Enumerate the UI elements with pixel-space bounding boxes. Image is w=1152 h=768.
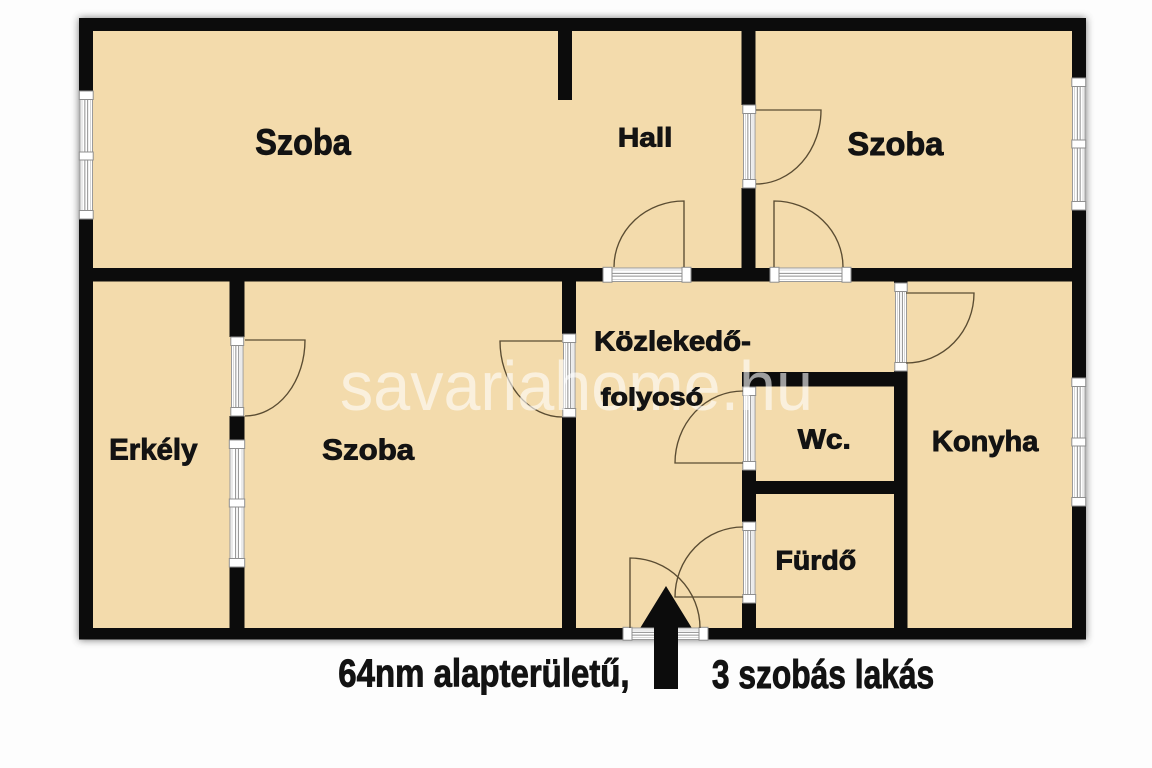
svg-text:Szoba: Szoba	[255, 121, 351, 162]
svg-text:folyosó: folyosó	[601, 384, 703, 412]
svg-text:Hall: Hall	[618, 123, 673, 153]
svg-text:3 szobás lakás: 3 szobás lakás	[712, 653, 934, 697]
svg-text:Erkély: Erkély	[109, 434, 198, 467]
svg-text:Wc.: Wc.	[798, 424, 851, 455]
svg-text:Szoba: Szoba	[322, 435, 415, 467]
svg-text:savariahome.hu: savariahome.hu	[340, 347, 813, 425]
svg-text:Fürdő: Fürdő	[776, 546, 857, 576]
svg-text:64nm alapterületű,: 64nm alapterületű,	[338, 653, 629, 696]
svg-text:Közlekedő-: Közlekedő-	[594, 326, 751, 357]
svg-text:Szoba: Szoba	[848, 126, 945, 162]
svg-text:Konyha: Konyha	[932, 426, 1040, 458]
